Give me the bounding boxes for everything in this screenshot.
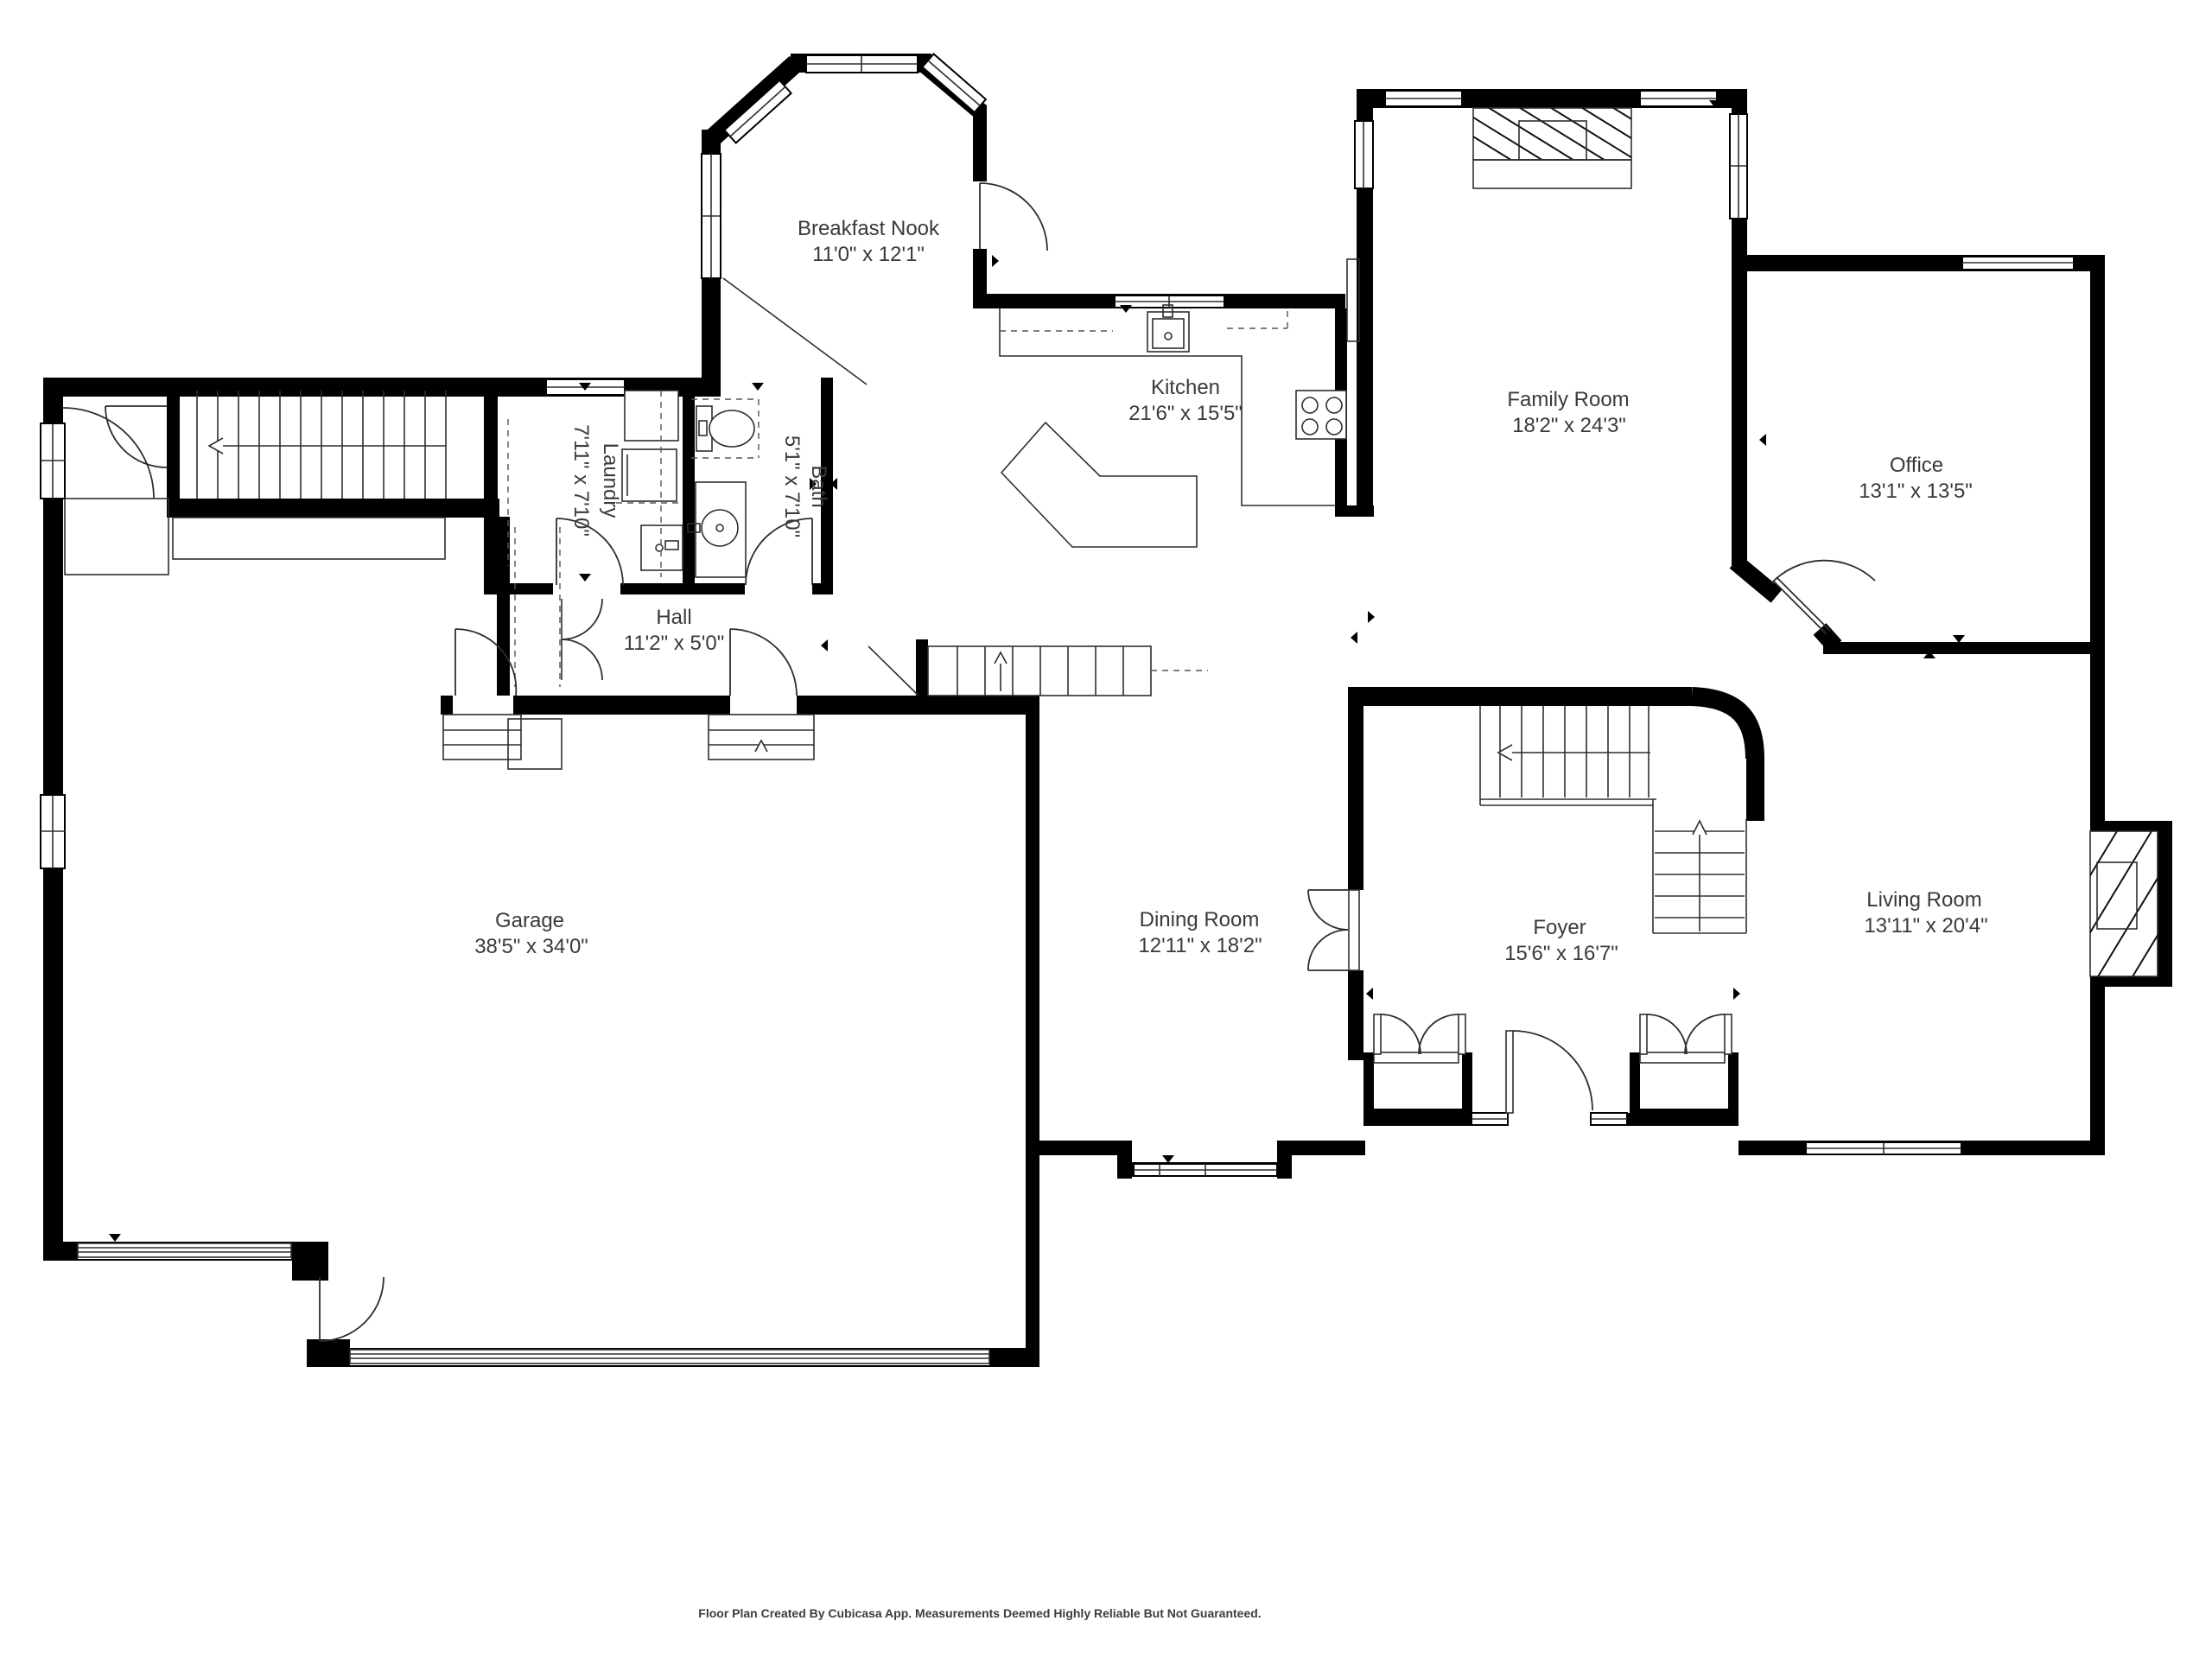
garage-door: [78, 1243, 291, 1257]
walls-layer: [43, 54, 2172, 1367]
room-label-foyer: Foyer: [1533, 916, 1586, 939]
door-sill: [1349, 890, 1359, 970]
footer-disclaimer: Floor Plan Created By Cubicasa App. Meas…: [698, 1606, 1261, 1620]
window: [41, 423, 65, 499]
floor-plan-page: Breakfast Nook 11'0" x 12'1" Kitchen 21'…: [0, 0, 2212, 1659]
window: [1640, 91, 1717, 106]
room-dims-dining-room: 12'11" x 18'2": [1138, 934, 1262, 957]
room-label-office: Office: [1890, 454, 1943, 477]
windows-layer: [41, 54, 2074, 1363]
room-label-bath: Bath: [807, 465, 830, 507]
room-label-laundry: Laundry: [599, 443, 622, 518]
room-label-living-room: Living Room: [1866, 888, 1981, 912]
window: [1134, 1164, 1277, 1176]
stove-icon: [1296, 391, 1346, 439]
window: [1591, 1113, 1627, 1125]
room-dims-breakfast-nook: 11'0" x 12'1": [812, 243, 925, 266]
dining-french-doors: [1308, 890, 1348, 970]
window: [1962, 257, 2074, 270]
front-door: [1506, 1031, 1592, 1113]
room-dims-foyer: 15'6" x 16'7": [1504, 942, 1618, 965]
fireplace-living-room: [2013, 831, 2212, 1115]
room-label-family-room: Family Room: [1507, 388, 1629, 411]
stairs-foyer: [1480, 706, 1746, 933]
mudroom-landing: [65, 499, 168, 575]
hall-closet: [508, 527, 562, 769]
room-label-breakfast-nook: Breakfast Nook: [798, 217, 940, 240]
kitchen-sink: [1147, 305, 1189, 352]
door-sill: [1374, 1052, 1459, 1063]
room-label-garage: Garage: [495, 909, 564, 932]
window: [702, 154, 721, 278]
window: [1471, 1113, 1508, 1125]
window: [1806, 1142, 1961, 1154]
door-sill: [1640, 1052, 1725, 1063]
understair-landing: [173, 518, 445, 559]
fireplace-family-room: [1417, 102, 1707, 188]
window: [41, 795, 65, 868]
stairs-upper-left: [65, 391, 446, 575]
door-hall: [730, 629, 797, 696]
door-openings: [78, 181, 1365, 1365]
garage-door: [350, 1350, 989, 1363]
door-office-diagonal: [1771, 561, 1875, 634]
bath-vanity: [688, 482, 746, 577]
nook-diagonal-line: [723, 278, 867, 385]
room-dims-laundry: 7'11" x 7'10": [569, 424, 593, 537]
cabinet: [508, 719, 562, 769]
window: [1355, 121, 1373, 188]
door-breakfast-nook: [980, 183, 1047, 251]
washer-icon: [625, 391, 678, 441]
room-dims-kitchen: 21'6" x 15'5": [1128, 402, 1243, 425]
room-label-hall: Hall: [656, 606, 691, 629]
hearth: [1473, 160, 1631, 188]
room-dims-garage: 38'5" x 34'0": [474, 935, 588, 958]
room-dims-hall: 11'2" x 5'0": [624, 632, 725, 655]
room-label-kitchen: Kitchen: [1151, 376, 1220, 399]
window: [922, 54, 985, 112]
room-dims-living-room: 13'11" x 20'4": [1864, 914, 1987, 938]
closet-double-doors: [562, 599, 602, 680]
room-dims-office: 13'1" x 13'5": [1859, 480, 1973, 503]
window: [806, 55, 918, 73]
door-mudroom-2: [63, 408, 154, 499]
niche-left-doors: [1374, 1014, 1465, 1054]
room-label-dining-room: Dining Room: [1140, 908, 1260, 931]
dryer-icon: [622, 449, 677, 501]
laundry-sink: [641, 525, 683, 570]
opening-markers: [109, 100, 2097, 1242]
doors-layer: [63, 183, 1875, 1341]
door-mudroom-1: [105, 406, 167, 467]
niche-right-doors: [1640, 1014, 1732, 1054]
kitchen-island: [1001, 423, 1197, 547]
toilet-icon: [691, 399, 759, 458]
steps-hall-to-garage: [443, 715, 814, 760]
room-dims-family-room: 18'2" x 24'3": [1512, 414, 1626, 437]
window: [1730, 114, 1747, 219]
window: [1385, 91, 1462, 106]
room-dims-bath: 5'1" x 7'10": [780, 435, 804, 537]
floor-plan-drawing: Breakfast Nook 11'0" x 12'1" Kitchen 21'…: [0, 0, 2212, 1659]
